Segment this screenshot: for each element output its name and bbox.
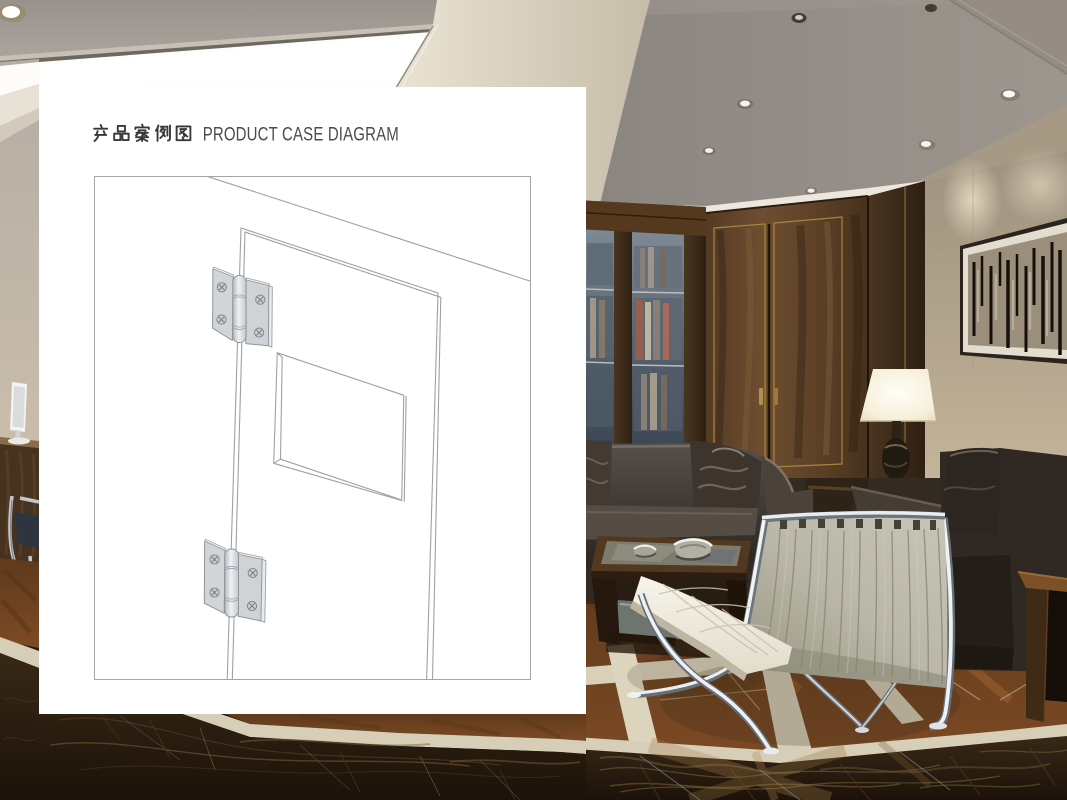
svg-text:PRODUCT CASE DIAGRAM: PRODUCT CASE DIAGRAM (203, 123, 399, 145)
